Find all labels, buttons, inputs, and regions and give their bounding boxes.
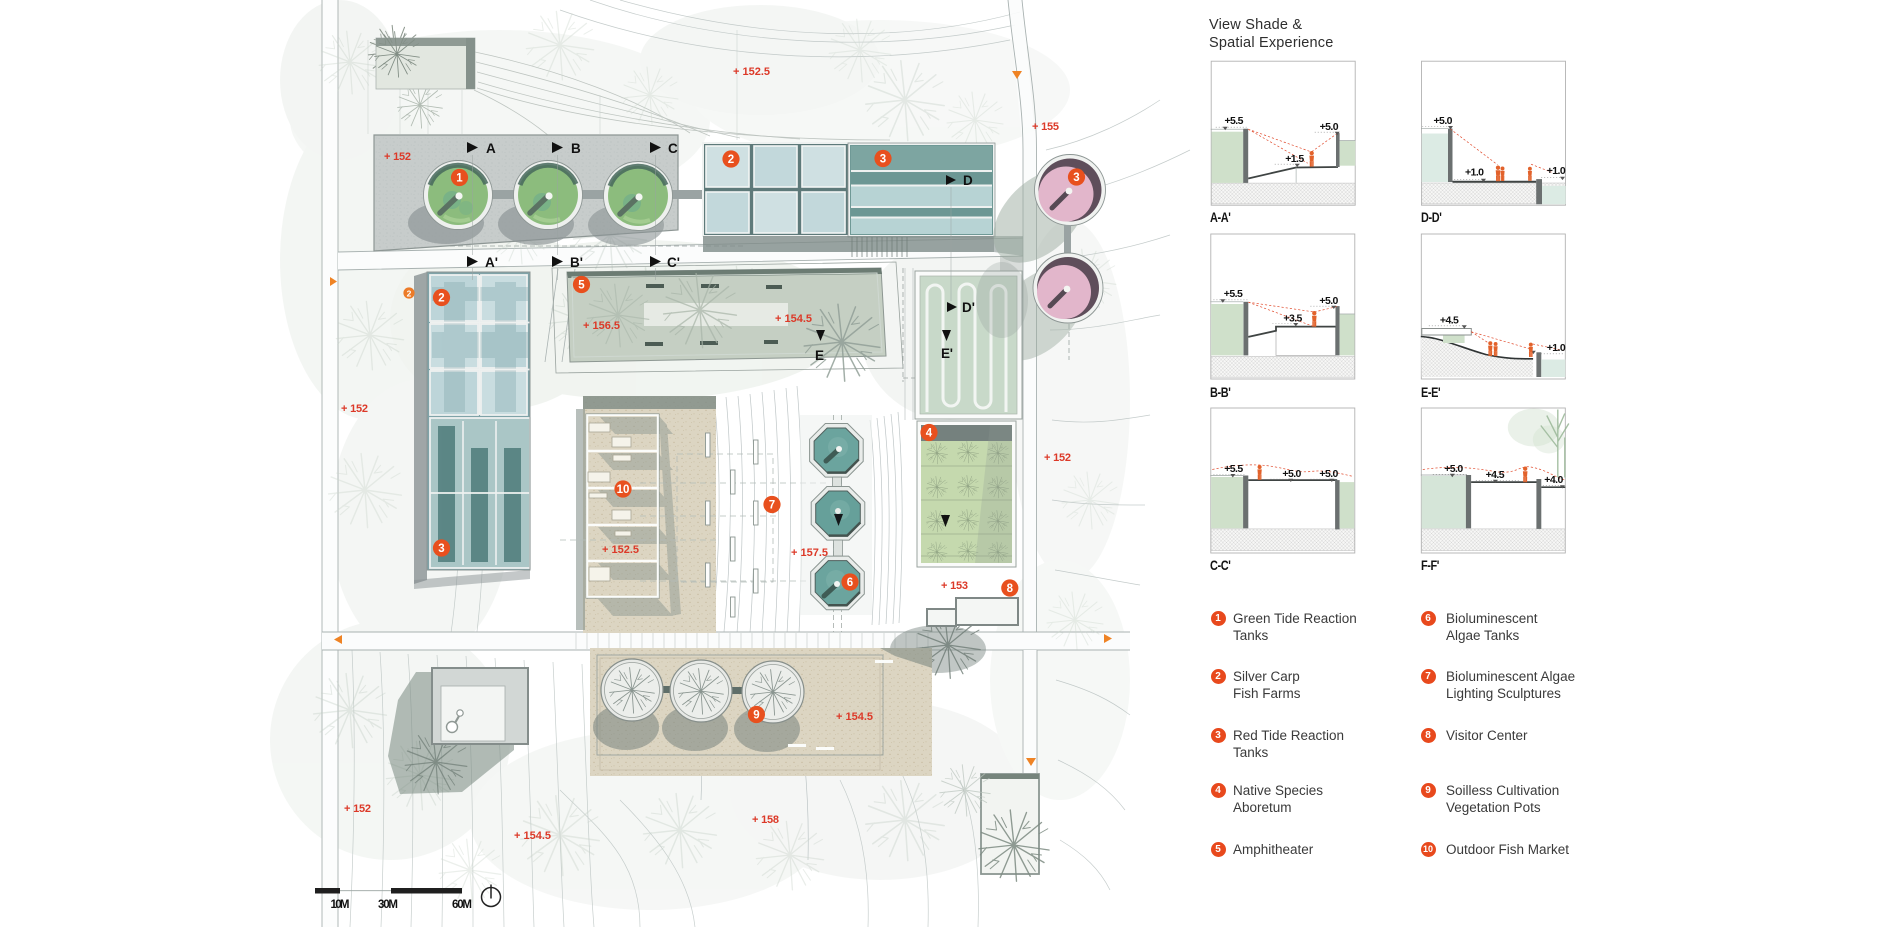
- svg-text:+5.5: +5.5: [1225, 115, 1244, 127]
- svg-text:+ 152: + 152: [344, 803, 371, 815]
- svg-text:+ 153: + 153: [941, 580, 968, 592]
- svg-text:E': E': [941, 346, 953, 361]
- svg-text:10: 10: [617, 484, 630, 496]
- svg-text:60M: 60M: [452, 899, 472, 911]
- svg-text:+5.0: +5.0: [1319, 295, 1338, 307]
- svg-text:D': D': [962, 300, 975, 315]
- svg-text:+5.5: +5.5: [1224, 288, 1243, 300]
- svg-text:+5.0: +5.0: [1282, 468, 1301, 480]
- svg-text:2: 2: [728, 154, 734, 166]
- svg-text:7: 7: [769, 500, 775, 512]
- svg-text:+4.5: +4.5: [1440, 315, 1459, 327]
- svg-text:+1.0: +1.0: [1547, 165, 1566, 177]
- svg-text:1: 1: [456, 173, 463, 185]
- svg-text:+4.0: +4.0: [1544, 474, 1563, 486]
- svg-text:+ 154.5: + 154.5: [775, 313, 812, 325]
- svg-text:5: 5: [578, 280, 585, 292]
- svg-text:3: 3: [438, 543, 444, 555]
- svg-text:2: 2: [438, 293, 444, 305]
- svg-text:+ 152: + 152: [1044, 452, 1071, 464]
- svg-text:C: C: [668, 141, 678, 156]
- svg-text:+3.5: +3.5: [1283, 313, 1302, 325]
- svg-text:6: 6: [847, 577, 853, 589]
- svg-text:C': C': [667, 255, 680, 270]
- svg-text:+ 154.5: + 154.5: [836, 711, 873, 723]
- svg-text:+5.0: +5.0: [1320, 121, 1339, 133]
- svg-text:+ 152: + 152: [384, 151, 411, 163]
- svg-text:+ 158: + 158: [752, 814, 779, 826]
- svg-text:+ 152.5: + 152.5: [733, 66, 770, 78]
- svg-text:10M: 10M: [331, 899, 350, 911]
- svg-text:D: D: [963, 173, 973, 188]
- svg-text:+1.0: +1.0: [1465, 167, 1484, 179]
- svg-text:A: A: [486, 141, 496, 156]
- svg-text:+5.0: +5.0: [1434, 115, 1453, 127]
- svg-text:+ 156.5: + 156.5: [583, 320, 620, 332]
- svg-text:4: 4: [926, 428, 933, 440]
- svg-text:30M: 30M: [378, 899, 398, 911]
- svg-text:A': A': [485, 255, 498, 270]
- svg-text:3: 3: [880, 154, 886, 166]
- svg-text:B: B: [571, 141, 581, 156]
- svg-text:+1.0: +1.0: [1547, 342, 1566, 354]
- svg-text:+ 152.5: + 152.5: [602, 544, 639, 556]
- svg-text:+ 152: + 152: [341, 403, 368, 415]
- svg-text:+5.0: +5.0: [1444, 463, 1463, 475]
- svg-text:+5.0: +5.0: [1319, 468, 1338, 480]
- svg-text:B': B': [570, 255, 583, 270]
- svg-text:+1.5: +1.5: [1285, 153, 1304, 165]
- svg-text:9: 9: [753, 710, 759, 722]
- svg-text:E: E: [815, 348, 824, 363]
- svg-text:8: 8: [1007, 583, 1014, 595]
- svg-text:2: 2: [407, 289, 412, 299]
- svg-text:+ 154.5: + 154.5: [514, 830, 551, 842]
- svg-text:3: 3: [1073, 172, 1079, 184]
- svg-text:+4.5: +4.5: [1486, 469, 1505, 481]
- svg-text:+ 157.5: + 157.5: [791, 547, 828, 559]
- svg-text:+ 155: + 155: [1032, 121, 1059, 133]
- svg-text:+5.5: +5.5: [1224, 463, 1243, 475]
